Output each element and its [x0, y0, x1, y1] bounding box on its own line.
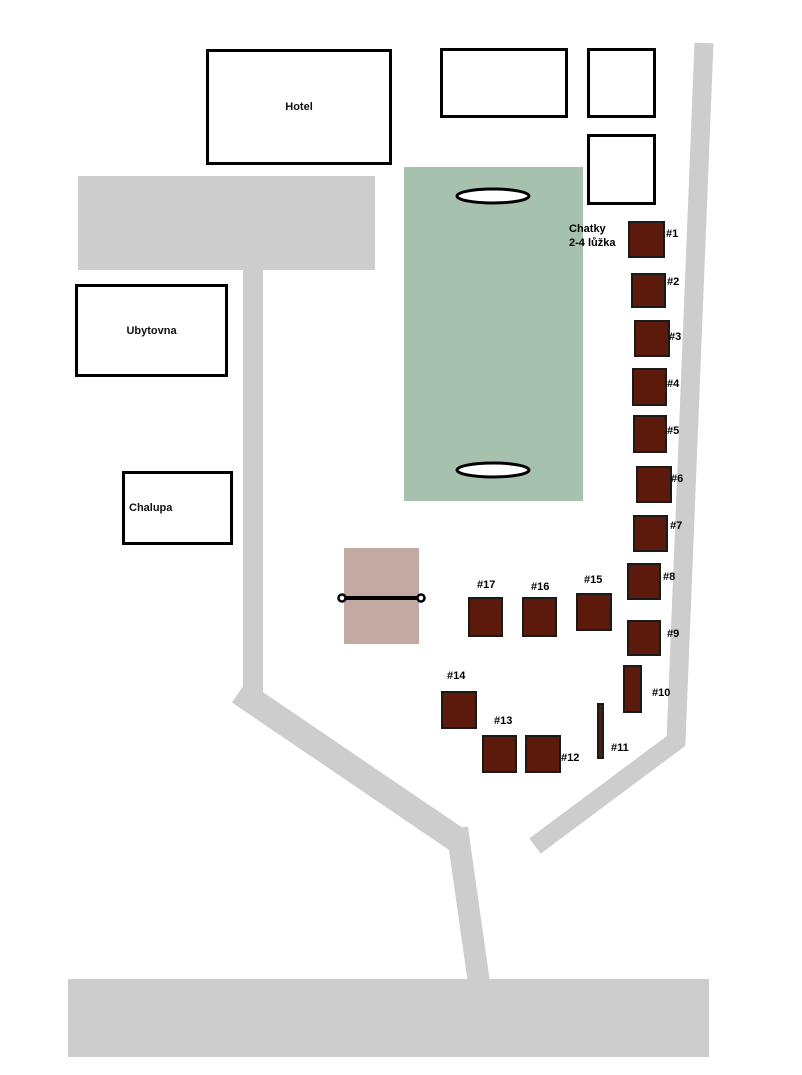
cabin-label-13: #13 [494, 716, 512, 727]
building-chalupa: Chalupa [122, 471, 233, 545]
cabin-17 [468, 597, 503, 637]
building-hotel: Hotel [206, 49, 392, 165]
building-building-a [440, 48, 568, 118]
cabin-label-6: #6 [671, 474, 683, 485]
cabin-label-12: #12 [561, 753, 579, 764]
cabin-label-5: #5 [667, 426, 679, 437]
building-label-ubytovna: Ubytovna [126, 325, 176, 337]
cabin-4 [632, 368, 667, 406]
cabin-label-8: #8 [663, 572, 675, 583]
cabin-15 [576, 593, 612, 631]
cabins-note-line2: 2-4 lůžka [569, 236, 615, 250]
cabin-7 [633, 515, 668, 552]
path-diagonal-left [250, 699, 450, 835]
building-building-b [587, 48, 656, 118]
cabin-label-2: #2 [667, 277, 679, 288]
cabins-note: Chatky 2-4 lůžka [569, 222, 615, 250]
cabin-11 [597, 703, 604, 759]
cabin-16 [522, 597, 557, 637]
road-bottom [68, 979, 709, 1057]
cabin-label-11: #11 [611, 743, 629, 754]
cabin-2 [631, 273, 666, 308]
cabin-label-9: #9 [667, 629, 679, 640]
cabin-3 [634, 320, 670, 357]
cabin-14 [441, 691, 477, 729]
path-vertical [243, 268, 263, 704]
cabin-6 [636, 466, 672, 503]
green-field [404, 167, 583, 501]
cabin-label-15: #15 [584, 575, 602, 586]
cabin-label-17: #17 [477, 580, 495, 591]
cabin-8 [627, 563, 661, 600]
cabin-label-3: #3 [669, 332, 681, 343]
cabin-9 [627, 620, 661, 656]
building-ubytovna: Ubytovna [75, 284, 228, 377]
net-post-left [339, 595, 346, 602]
building-label-hotel: Hotel [285, 101, 313, 113]
cabin-12 [525, 735, 561, 773]
cabin-label-16: #16 [531, 582, 549, 593]
field-oval-top [457, 189, 529, 203]
cabin-label-4: #4 [667, 379, 679, 390]
site-map: HotelUbytovnaChalupa#1#2#3#4#5#6#7#8#9#1… [0, 0, 802, 1075]
cabins-note-line1: Chatky [569, 222, 615, 236]
map-graphics [0, 0, 802, 1075]
cabin-label-1: #1 [666, 229, 678, 240]
cabin-13 [482, 735, 517, 773]
path-south [457, 828, 480, 990]
path-top-horizontal [78, 176, 375, 270]
cabin-1 [628, 221, 665, 258]
building-building-c [587, 134, 656, 205]
cabin-label-10: #10 [652, 688, 670, 699]
cabin-label-14: #14 [447, 671, 465, 682]
cabin-label-7: #7 [670, 521, 682, 532]
building-label-chalupa: Chalupa [129, 502, 172, 514]
cabin-5 [633, 415, 667, 453]
field-oval-bottom [457, 463, 529, 477]
cabin-10 [623, 665, 642, 713]
net-post-right [418, 595, 425, 602]
